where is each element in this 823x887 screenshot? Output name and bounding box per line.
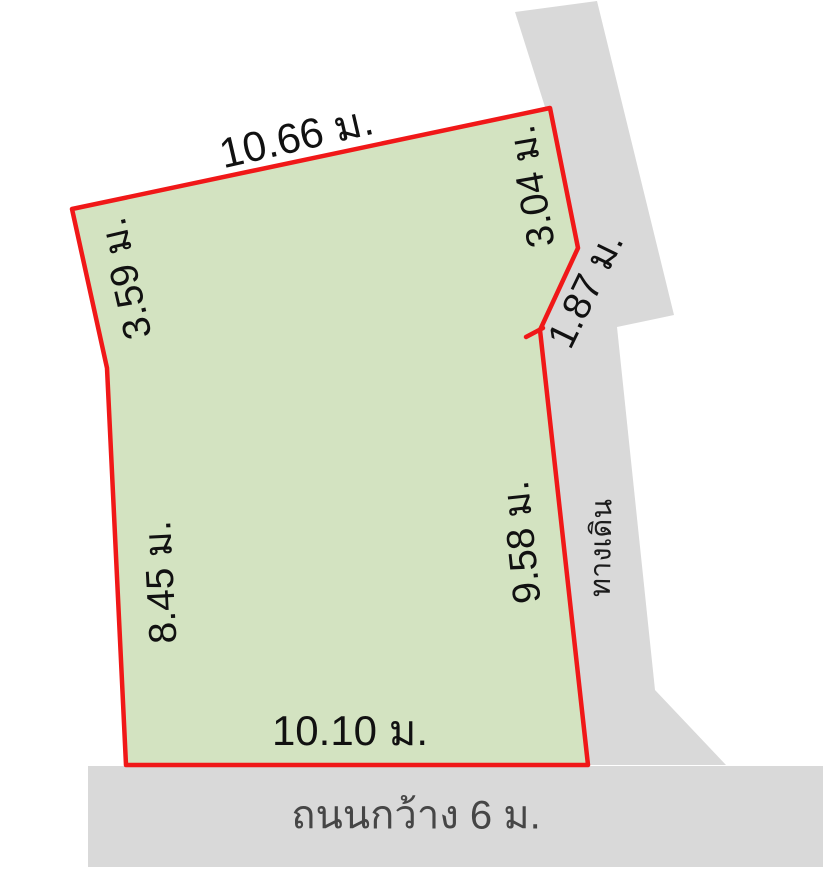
land-plot-diagram: 10.66 ม. 3.59 ม. 8.45 ม. 3.04 ม. 1.87 ม.… [0, 0, 823, 887]
dimension-label-lower-left: 8.45 ม. [136, 519, 185, 644]
dimension-label-bottom: 10.10 ม. [272, 707, 428, 754]
walkway-label: ทางเดิน [585, 498, 619, 597]
road-label: ถนนกว้าง 6 ม. [291, 794, 541, 838]
survey-canvas: 10.66 ม. 3.59 ม. 8.45 ม. 3.04 ม. 1.87 ม.… [0, 0, 823, 887]
plot-area [72, 108, 588, 765]
